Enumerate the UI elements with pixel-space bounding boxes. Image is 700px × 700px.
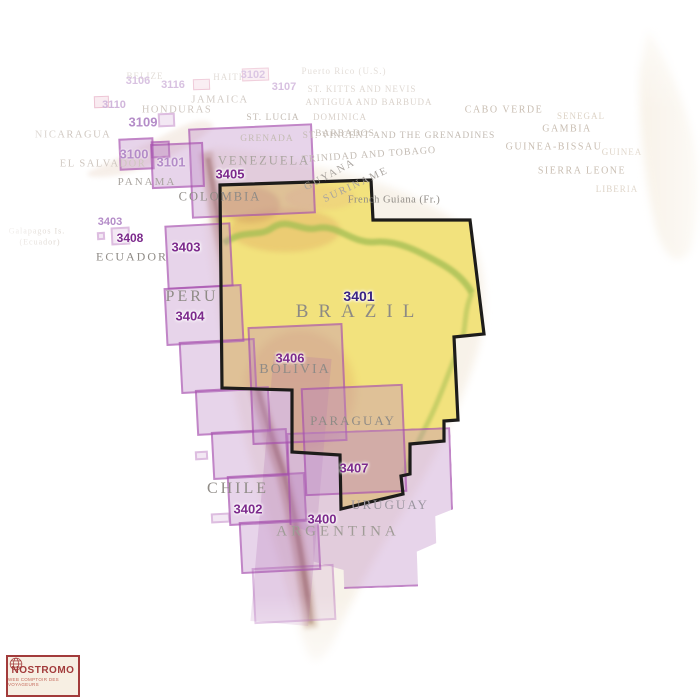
chart-code-3402[interactable]: 3402 [234, 502, 263, 517]
country-label-galapagos: Galapagos Is. [9, 227, 66, 236]
chart-code-3109[interactable]: 3109 [129, 115, 158, 130]
logo-tagline: WEB COMPTOIR DES VOYAGEURS [8, 677, 78, 687]
country-label-el-salvador: EL SALVADOR [60, 159, 146, 170]
country-label-antigua: ANTIGUA AND BARBUDA [305, 97, 432, 107]
country-label-chile: CHILE [207, 480, 269, 498]
chart-code-3110[interactable]: 3110 [102, 99, 126, 111]
country-label-trinidad: TRINIDAD AND TOBAGO [301, 145, 436, 165]
globe-icon [8, 657, 24, 671]
chart-code-3404[interactable]: 3404 [176, 309, 205, 324]
map-canvas: BELIZEHAITI3102Puerto Rico (U.S.)3106311… [0, 0, 700, 700]
chart-code-3405[interactable]: 3405 [216, 167, 245, 182]
country-label-grenada: GRENADA [240, 134, 293, 144]
country-label-panama: PANAMA [118, 176, 177, 188]
country-label-guinea: GUINEA [602, 147, 643, 157]
country-label-argentina: ARGENTINA [276, 524, 400, 541]
country-label-ecuador: ECUADOR [96, 250, 168, 265]
country-label-bolivia: BOLIVIA [259, 362, 331, 378]
country-label-puerto-rico: Puerto Rico (U.S.) [302, 66, 387, 76]
chart-code-3107[interactable]: 3107 [272, 81, 296, 93]
country-label-gambia: GAMBIA [542, 124, 592, 135]
country-label-st-kitts: ST. KITTS AND NEVIS [308, 84, 417, 94]
country-label-peru: PERU [166, 288, 219, 306]
country-label-dominica: DOMINICA [313, 112, 367, 122]
chart-code-3101[interactable]: 3101 [157, 155, 186, 170]
country-label-liberia: LIBERIA [596, 184, 639, 194]
country-label-uruguay: URUGUAY [351, 497, 429, 513]
chart-code-3102[interactable]: 3102 [241, 69, 265, 81]
nostromo-logo[interactable]: NOSTROMO WEB COMPTOIR DES VOYAGEURS [6, 655, 80, 697]
chart-code-3408[interactable]: 3408 [117, 231, 144, 245]
chart-code-3403[interactable]: 3403 [172, 240, 201, 255]
country-label-guinea-bissau: GUINEA-BISSAU [506, 142, 603, 153]
country-label-sierra-leone: SIERRA LEONE [538, 166, 626, 177]
chart-code-3106[interactable]: 3106 [126, 75, 150, 87]
country-label-st-vincent: ST. VINCENT AND THE GRENADINES [303, 131, 496, 141]
chart-code-3116[interactable]: 3116 [161, 79, 185, 91]
country-label-haiti: HAITI [213, 72, 243, 82]
country-label-french-guiana: French Guiana (Fr.) [348, 195, 441, 206]
country-label-paraguay: PARAGUAY [310, 413, 396, 429]
map-labels: BELIZEHAITI3102Puerto Rico (U.S.)3106311… [0, 0, 700, 700]
chart-code-3403-small[interactable]: 3403 [98, 216, 122, 228]
country-label-nicaragua: NICARAGUA [35, 130, 112, 141]
chart-code-3407[interactable]: 3407 [340, 461, 369, 476]
country-label-senegal: SENEGAL [557, 111, 605, 121]
country-label-galapagos-2: (Ecuador) [20, 238, 61, 247]
country-label-st-lucia: ST. LUCIA [246, 113, 299, 123]
country-label-brazil: BRAZIL [296, 301, 425, 323]
country-label-colombia: COLOMBIA [179, 190, 262, 205]
country-label-cabo-verde: CABO VERDE [465, 105, 543, 116]
